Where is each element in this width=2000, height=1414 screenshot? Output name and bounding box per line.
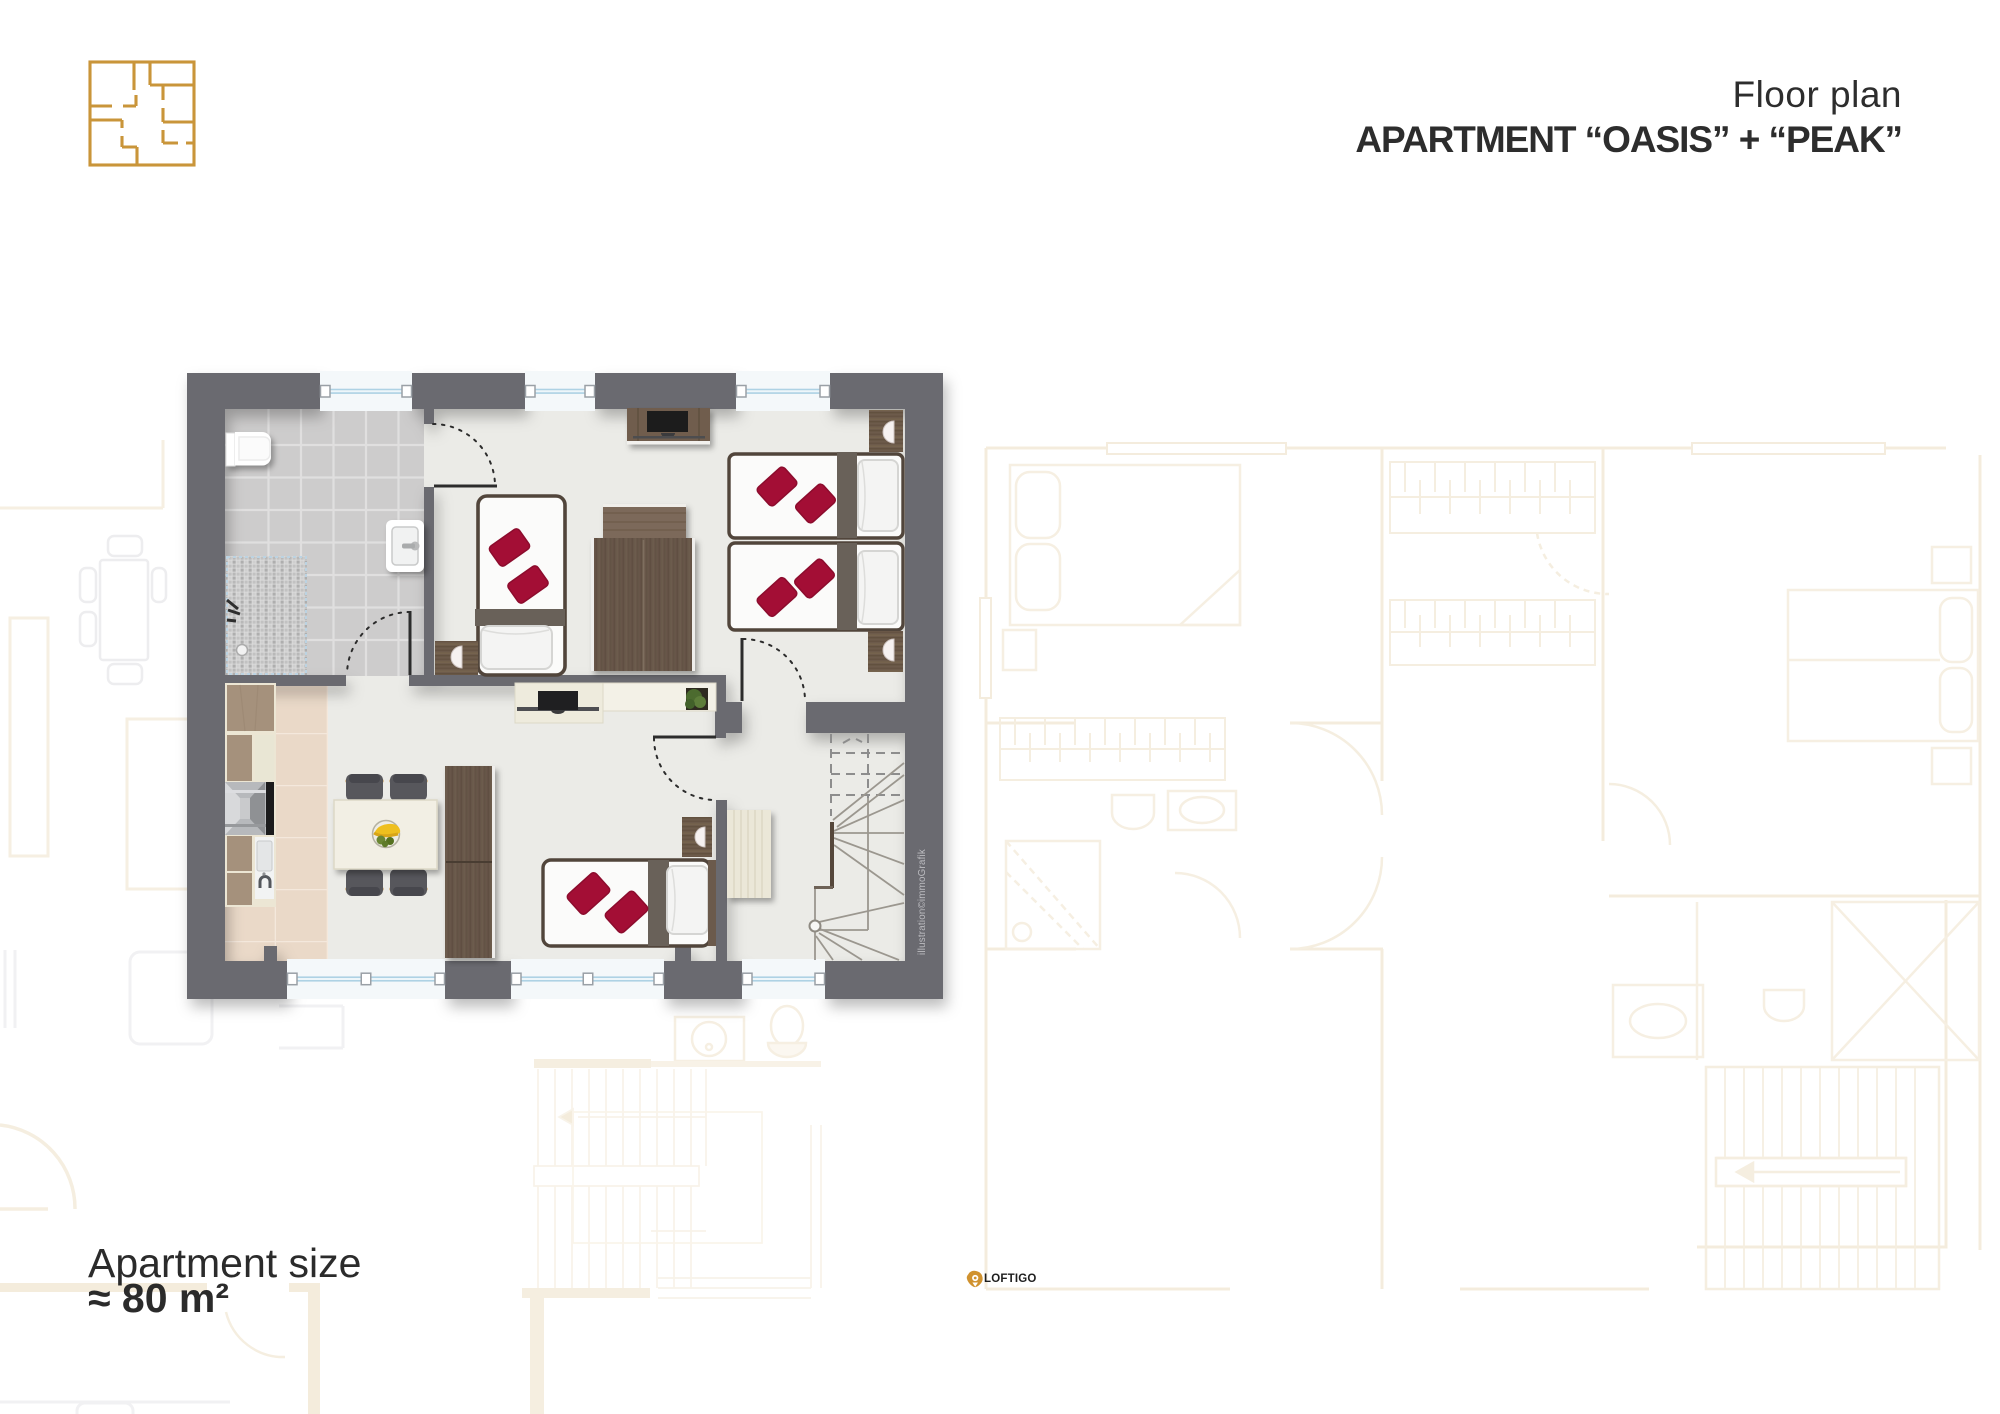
svg-text:illustration©immoGrafik: illustration©immoGrafik xyxy=(917,849,928,955)
